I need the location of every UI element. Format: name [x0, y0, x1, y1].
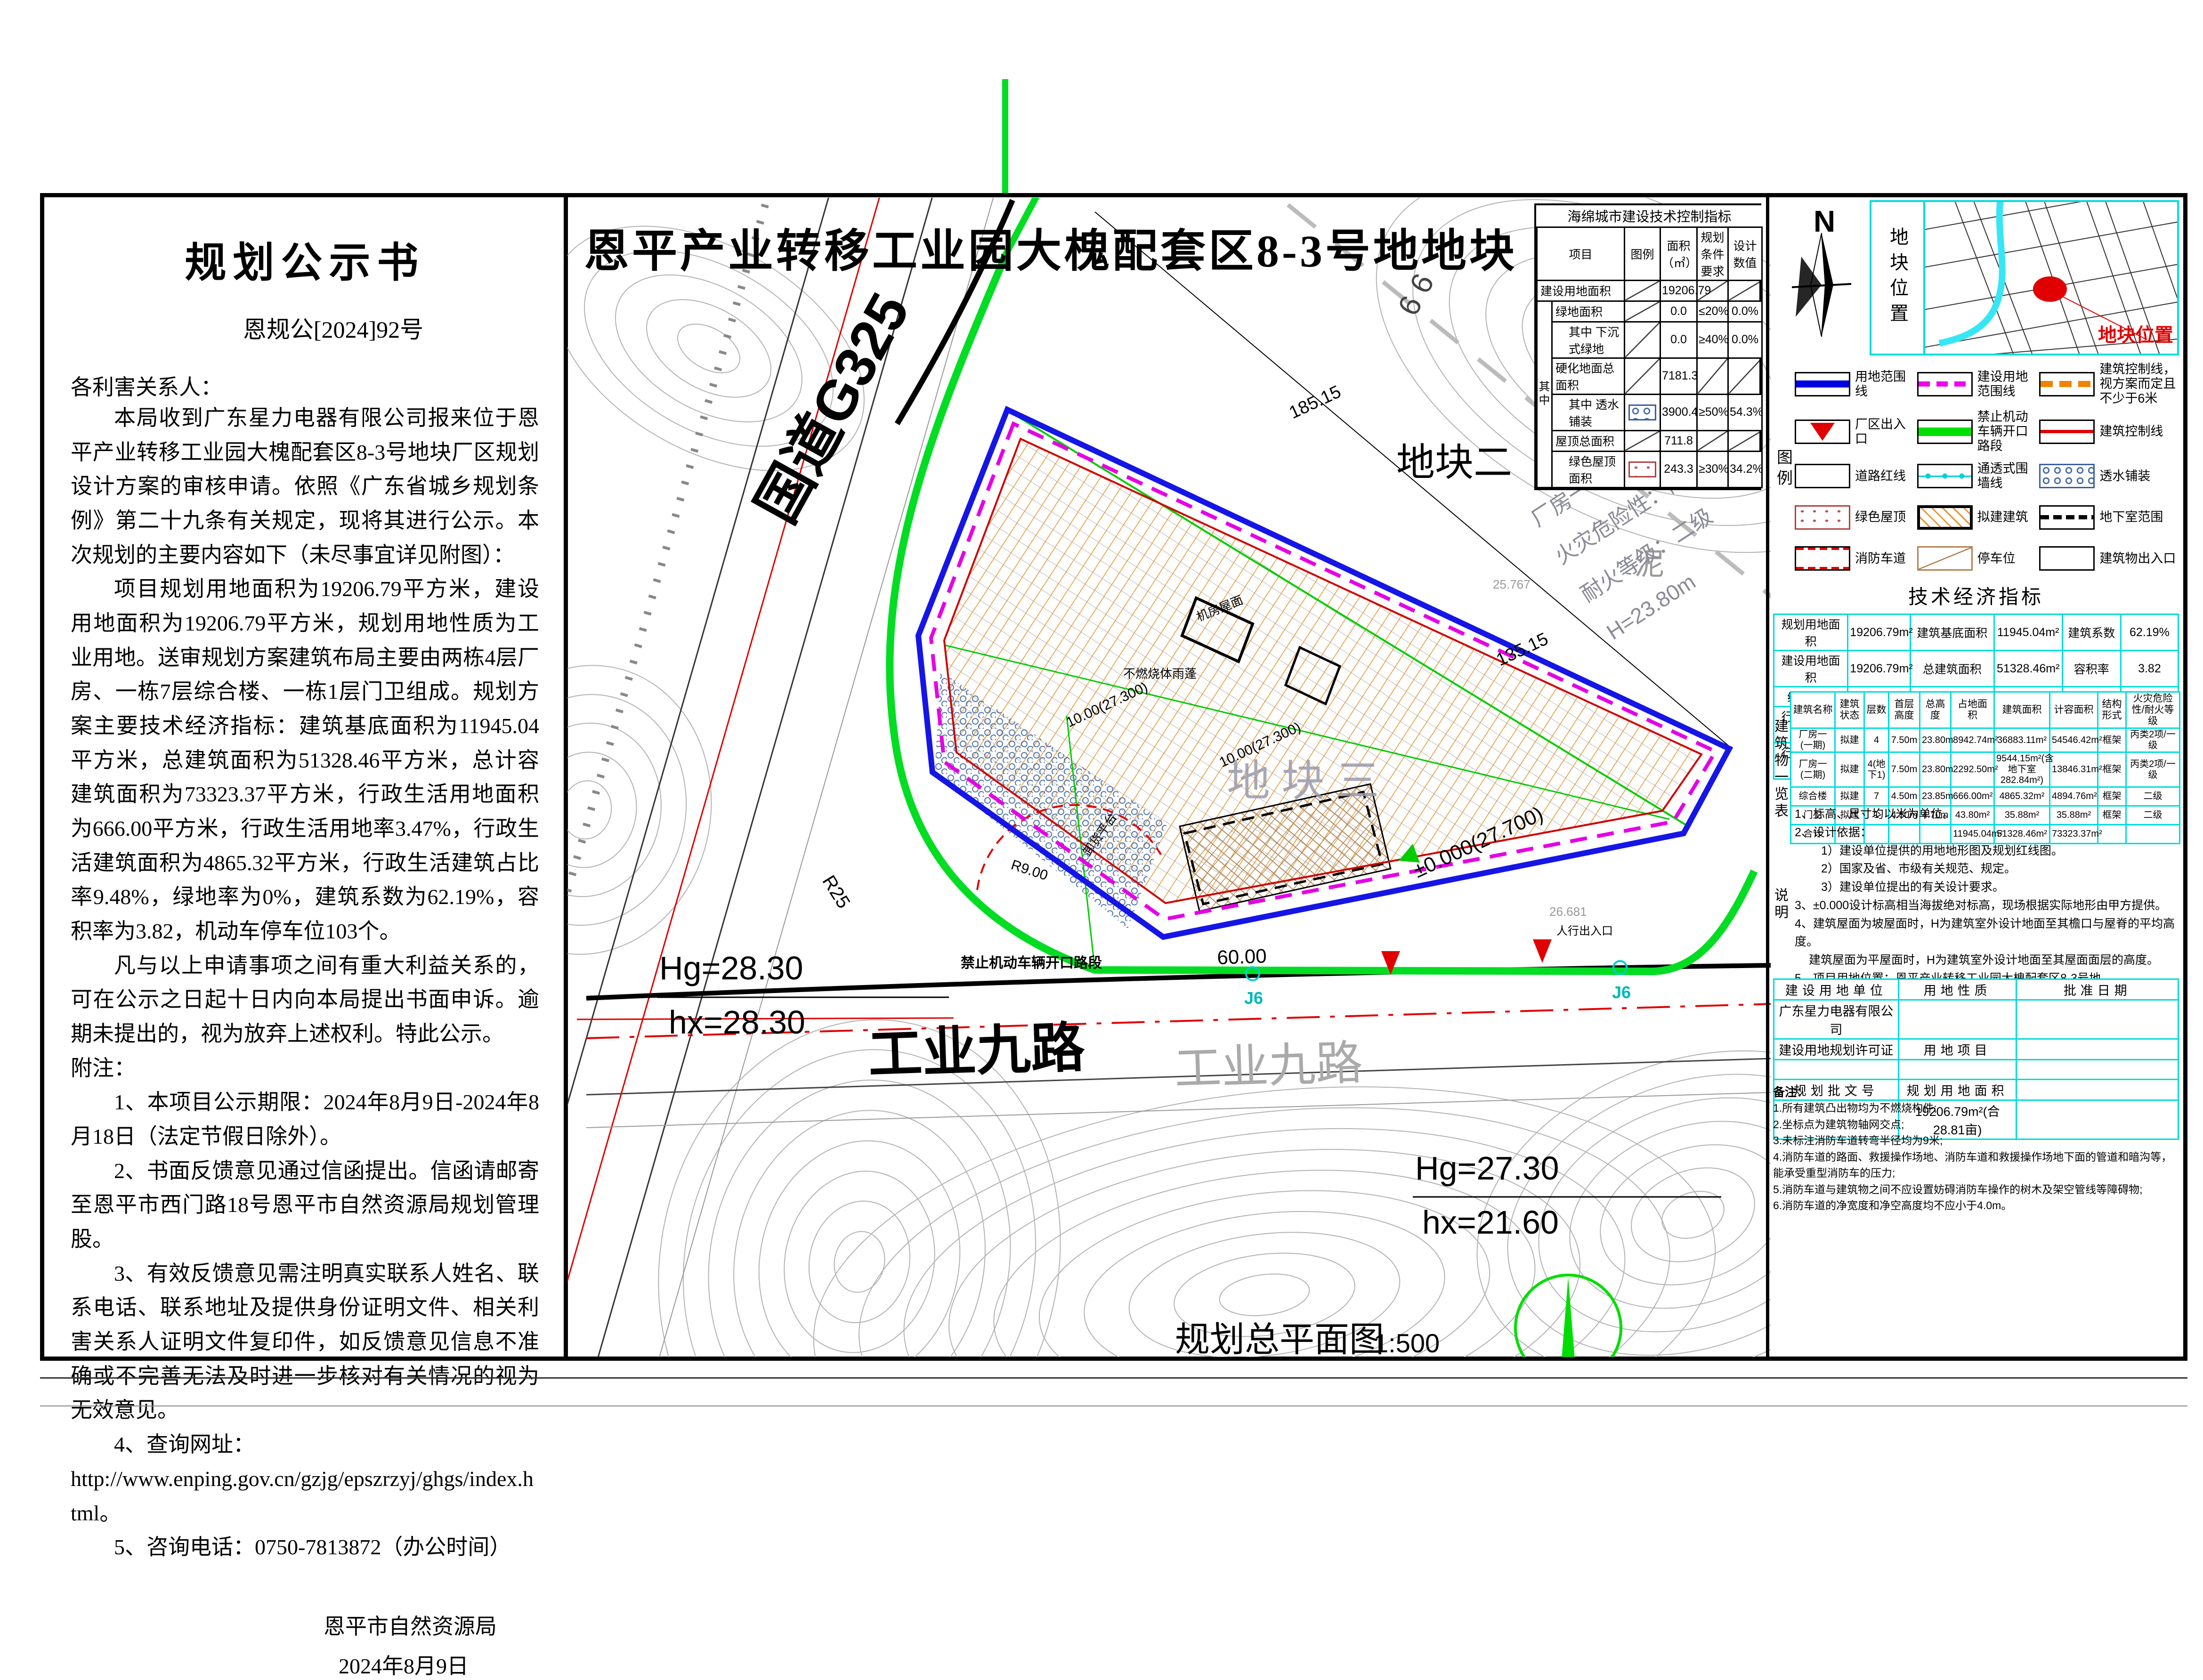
legend-item-label: 用地范围线 — [1855, 370, 1915, 399]
legend-item: 建筑控制线 — [2038, 408, 2179, 455]
legend-item: 建设用地范围线 — [1916, 360, 2039, 408]
span-label: 其中 — [1537, 301, 1552, 487]
legend-symbol-icon — [1795, 464, 1850, 488]
legend-symbol-icon — [2039, 505, 2095, 530]
legend-item: 建筑控制线，视方案而定且不少于6米 — [2038, 360, 2179, 408]
legend-symbol-icon — [1795, 420, 1850, 444]
legend: 图例 用地范围线 建设用地范围线 建筑控制线，视方案而定且不少于6米 厂区出入口… — [1773, 360, 2179, 579]
legend-item-label: 消防车道 — [1855, 551, 1906, 566]
permeable-paving-swatch — [1628, 404, 1656, 420]
notice-note-line: 5、咨询电话：0750-7813872（办公时间） — [71, 1530, 539, 1565]
plan-caption: 规划总平面图 — [1175, 1320, 1384, 1357]
sponge-title: 海绵城市建设技术控制指标 — [1537, 205, 1762, 227]
remarks-label: 备注： — [1773, 1083, 2176, 1100]
legend-item-label: 通透式围墙线 — [1977, 461, 2038, 491]
legend-item-label: 绿色屋顶 — [1855, 510, 1906, 525]
dim-label: 60.00 — [1217, 945, 1267, 969]
panel-divider — [1766, 197, 1769, 1357]
location-callout: 地块位置 — [2098, 320, 2173, 347]
notice-note-line: 2、书面反馈意见通过信函提出。信函请邮寄至恩平市西门路18号恩平市自然资源局规划… — [71, 1154, 539, 1257]
legend-item-label: 道路红线 — [1855, 469, 1906, 484]
legend-item: 绿色屋顶 — [1794, 497, 1916, 538]
legend-item: 拟建建筑 — [1916, 497, 2039, 538]
legend-symbol-icon — [1795, 546, 1850, 571]
legend-item: 用地范围线 — [1794, 360, 1916, 408]
remark-line: 6.消防车道的净宽度和净空高度均不应小于4.0m。 — [1773, 1197, 2176, 1214]
notice-title: 规划公示书 — [71, 229, 539, 289]
river — [1939, 202, 2002, 343]
factory-entrance-marker — [1533, 939, 1552, 963]
legend-side-label: 图例 — [1773, 360, 1794, 579]
elevation-label: hx=28.30 — [669, 1004, 805, 1041]
notice-notes-label: 附注： — [71, 1051, 539, 1086]
no-open-label: 禁止机动车辆开口路段 — [961, 955, 1102, 971]
elevation-label: Hg=27.30 — [1415, 1150, 1559, 1187]
row-label: 绿色屋顶面积 — [1552, 451, 1625, 487]
remark-line: 4.消防车道的路面、救援操作场地、消防车道和救援操作场地下面的管道和暗沟等，能承… — [1773, 1149, 2176, 1181]
legend-item-label: 建筑控制线 — [2099, 424, 2163, 439]
green-compass-needle — [1560, 1277, 1576, 1357]
location-strip-label: 地块位置 — [1870, 200, 1925, 355]
remark-line: 1.所有建筑凸出物均为不燃烧构件; — [1773, 1100, 2176, 1116]
parcel2-label: 地块二 — [1396, 441, 1512, 484]
building-table-header: 建筑名称建筑状态层数首层高度总高度占地面积建筑面积计容面积结构形式火灾危险性/耐… — [1791, 692, 2180, 728]
building-table-row: 厂房一(一期)拟建47.50m23.80m8942.74m²36883.11m²… — [1791, 728, 2180, 752]
row-label: 建设用地面积 — [1537, 280, 1625, 301]
legend-item: 消防车道 — [1794, 538, 1916, 579]
legend-item: 通透式围墙线 — [1916, 455, 2039, 497]
legend-symbol-icon — [1917, 420, 1973, 444]
canopy-label: 不燃烧体雨蓬 — [1123, 667, 1197, 681]
legend-item: 建筑物出入口 — [2038, 538, 2179, 579]
road-label-gy9: 工业九路 — [867, 1018, 1086, 1085]
plot-area — [918, 410, 1729, 980]
legend-item: 厂区出入口 — [1794, 408, 1916, 455]
road-label-gy9-ghost: 工业九路 — [1174, 1036, 1364, 1096]
row-label: 绿地面积 — [1552, 301, 1625, 322]
design-note-line: 2）国家及省、市级有关规范、规定。 — [1795, 860, 2177, 878]
radius-label: R9.00 — [1009, 857, 1050, 883]
sponge-city-table: 海绵城市建设技术控制指标 项目 图例 面积（㎡） 规划条件要求 设计数值 建设用… — [1534, 203, 1761, 490]
design-notes-list: 1、标高、尺寸均以米为单位。 2、设计依据： 1）建设单位提供的用地地形图及规划… — [1790, 800, 2179, 1006]
location-minimap: 地块位置 — [1925, 200, 2179, 355]
legend-item: 道路红线 — [1794, 455, 1916, 497]
legend-item: 透水铺装 — [2038, 455, 2179, 497]
design-note-line: 2、设计依据： — [1795, 824, 2177, 842]
site-location-dot — [2033, 276, 2067, 302]
notice-paragraph: 凡与以上申请事项之间有重大利益关系的，可在公示之日起十日内向本局提出书面申诉。逾… — [71, 949, 539, 1051]
elevation-label: Hg=28.30 — [659, 950, 803, 986]
legend-item-label: 透水铺装 — [2099, 469, 2150, 484]
legend-symbol-icon — [1795, 372, 1850, 396]
design-note-line: 4、建筑屋面为坡屋面时，H为建筑室外设计地面至其檐口与屋脊的平均高度。 — [1795, 915, 2177, 952]
road-label-g325: 国道G325 — [745, 283, 922, 533]
design-note-line: 1、标高、尺寸均以米为单位。 — [1795, 805, 2177, 824]
green-line-artifact — [1002, 79, 1008, 196]
legend-item-label: 建筑控制线，视方案而定且不少于6米 — [2099, 362, 2178, 406]
legend-symbol-icon — [2039, 420, 2095, 444]
legend-symbol-icon — [1917, 464, 1973, 488]
design-notes-side-label: 说明 — [1773, 800, 1790, 1006]
legend-item: 禁止机动车辆开口路段 — [1916, 408, 2039, 455]
planning-notice-sheet: { "notice": { "title": "规划公示书", "doc_no"… — [0, 0, 2203, 1558]
col-header: 项目 — [1537, 227, 1625, 280]
legend-item-label: 地下室范围 — [2099, 510, 2163, 525]
title-strip-line — [40, 1377, 2187, 1379]
legend-symbol-icon — [1917, 505, 1973, 530]
design-note-line: 建筑屋面为平屋面时，H为建筑室外设计地面至其屋面面层的高度。 — [1795, 951, 2177, 969]
tech-table-title: 技术经济指标 — [1773, 580, 2179, 614]
legend-symbol-icon — [1795, 505, 1850, 530]
design-note-line: 3、±0.000设计标高相当海拔绝对标高，现场根据实际地形由甲方提供。 — [1795, 897, 2177, 915]
junction-label: J6 — [1612, 983, 1631, 1002]
notice-doc-number: 恩规公[2024]92号 — [71, 311, 539, 345]
radius-label: R25 — [818, 872, 854, 912]
notice-paragraph: 本局收到广东星力电器有限公司报来位于恩平产业转移工业园大槐配套区8-3号地块厂区… — [71, 401, 539, 572]
area-value: 19206.79 — [1660, 280, 1697, 301]
notice-notes-list: 1、本项目公示期限：2024年8月9日-2024年8月18日（法定节假日除外）。… — [71, 1085, 539, 1564]
notice-note-line: 4、查询网址： — [71, 1428, 539, 1462]
legend-item: 停车位 — [1916, 538, 2039, 579]
col-header: 规划条件要求 — [1697, 227, 1728, 280]
row-label: 硬化地面总面积 — [1552, 358, 1625, 394]
legend-item-label: 建筑物出入口 — [2099, 551, 2176, 566]
legend-item-label: 建设用地范围线 — [1977, 370, 2038, 399]
notice-note-line: 1、本项目公示期限：2024年8月9日-2024年8月18日（法定节假日除外）。 — [71, 1085, 539, 1154]
row-label: 其中 透水铺装 — [1552, 394, 1625, 430]
col-header: 图例 — [1625, 227, 1660, 280]
col-header: 设计数值 — [1728, 227, 1762, 280]
notice-agency: 恩平市自然资源局 — [71, 1609, 539, 1640]
notice-paragraph: 项目规划用地面积为19206.79平方米，建设用地面积为19206.79平方米，… — [71, 572, 539, 948]
remarks-list: 1.所有建筑凸出物均为不燃烧构件; 2.坐标点为建筑物轴网交点; 3.未标注消防… — [1773, 1100, 2176, 1214]
row-label: 屋顶总面积 — [1552, 430, 1625, 451]
legend-item-label: 厂区出入口 — [1855, 417, 1915, 446]
legend-symbol-icon — [2039, 372, 2095, 396]
legend-item-label: 拟建建筑 — [1977, 510, 2028, 525]
dim-label: 185.15 — [1286, 382, 1344, 423]
spot-elevation: 25.767 — [1493, 577, 1531, 591]
green-roof-swatch — [1628, 461, 1656, 477]
legend-item-label: 停车位 — [1977, 551, 2016, 566]
remarks-block: 备注： 1.所有建筑凸出物均为不燃烧构件; 2.坐标点为建筑物轴网交点; 3.未… — [1773, 1083, 2176, 1214]
compass-location-block: N 地块位置 地块位置 — [1773, 200, 2179, 355]
legend-item-label: 禁止机动车辆开口路段 — [1977, 410, 2038, 453]
legend-symbol-icon — [2039, 546, 2095, 571]
remark-line: 3.未标注消防车道转弯半径均为9米; — [1773, 1132, 2176, 1149]
notice-salutation: 各利害关系人： — [71, 370, 539, 401]
remark-line: 5.消防车道与建筑物之间不应设置妨碍消防车操作的树木及架空管线等障碍物; — [1773, 1181, 2176, 1198]
design-note-line: 1）建设单位提供的用地地形图及规划红线图。 — [1795, 842, 2177, 860]
col-header: 面积（㎡） — [1660, 227, 1697, 280]
notice-note-line: http://www.enping.gov.cn/gzjg/epszrzyj/g… — [71, 1462, 539, 1530]
junction-label: J6 — [1244, 988, 1263, 1008]
plan-scale: 1:500 — [1374, 1328, 1440, 1357]
compass-n-label: N — [1814, 204, 1835, 239]
design-notes: 说明 1、标高、尺寸均以米为单位。 2、设计依据： 1）建设单位提供的用地地形图… — [1773, 800, 2179, 1006]
building-table-row: 厂房一(二期)拟建4(地下1)7.50m23.80m2292.50m²9544.… — [1791, 752, 2180, 787]
title-strip-line — [40, 1405, 2187, 1406]
design-note-line: 3）建设单位提出的有关设计要求。 — [1795, 878, 2177, 897]
elevation-label: hx=21.60 — [1422, 1204, 1559, 1241]
remark-line: 2.坐标点为建筑物轴网交点; — [1773, 1116, 2176, 1133]
parcel3-label: 地块三 — [1227, 757, 1391, 805]
notice-panel: 规划公示书 恩规公[2024]92号 各利害关系人： 本局收到广东星力电器有限公… — [44, 197, 568, 1357]
pedestrian-entry-label: 人行出入口 — [1556, 925, 1613, 937]
notice-note-line: 3、有效反馈意见需注明真实联系人姓名、联系电话、联系地址及提供身份证明文件、相关… — [71, 1257, 539, 1428]
compass: N — [1773, 200, 1870, 355]
notice-date: 2024年8月9日 — [71, 1649, 539, 1680]
legend-symbol-icon — [2039, 464, 2095, 488]
row-label: 其中 下沉式绿地 — [1552, 322, 1625, 358]
spot-elevation: 26.681 — [1549, 905, 1587, 919]
legend-item: 地下室范围 — [2038, 497, 2179, 538]
legend-symbol-icon — [1917, 372, 1973, 396]
legend-symbol-icon — [1917, 546, 1973, 571]
